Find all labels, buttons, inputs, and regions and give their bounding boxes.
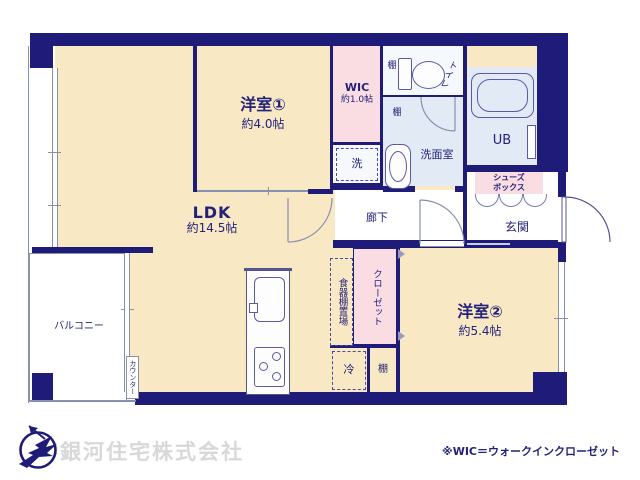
company-logo	[15, 423, 61, 475]
room-label-ldk: LDK	[162, 204, 262, 221]
label-fridge: 冷	[342, 363, 356, 377]
label-shoebox-2: ボックス	[475, 183, 543, 193]
room-size-yoshitsu1: 約4.0帖	[213, 117, 313, 131]
floor-plan: 洋室① 約4.0帖 LDK 約14.5帖 洋室② 約5.4帖 WIC 約1.0帖…	[0, 0, 640, 480]
room-label-entrance: 玄関	[492, 220, 542, 234]
wic-footnote: ※WIC＝ウォークインクローゼット	[428, 444, 620, 459]
room-label-balcony: バルコニー	[40, 321, 118, 334]
room-label-ub: UB	[480, 134, 524, 149]
label-shelf-top: 棚	[385, 61, 399, 73]
label-shelf-bottom: 棚	[376, 364, 390, 377]
label-counter: カウンター	[127, 358, 138, 397]
label-shelf-mid: 棚	[390, 108, 404, 120]
room-size-yoshitsu2: 約5.4帖	[430, 324, 530, 338]
room-size-wic: 約1.0帖	[331, 95, 383, 107]
label-cupboard: 食器棚置場	[331, 262, 352, 342]
door-arcs	[0, 0, 640, 480]
label-closet: クローゼット	[366, 256, 386, 338]
room-size-ldk: 約14.5帖	[162, 221, 262, 235]
company-name: 銀河住宅株式会社	[60, 438, 280, 466]
label-laundry: 洗	[350, 157, 364, 171]
room-label-yoshitsu1: 洋室①	[213, 96, 313, 114]
room-label-hallway: 廊下	[352, 211, 402, 225]
label-shoebox-1: シューズ	[475, 173, 543, 183]
room-label-washroom: 洗面室	[410, 148, 464, 161]
room-label-wic: WIC	[333, 81, 381, 94]
room-label-yoshitsu2: 洋室②	[430, 303, 530, 321]
